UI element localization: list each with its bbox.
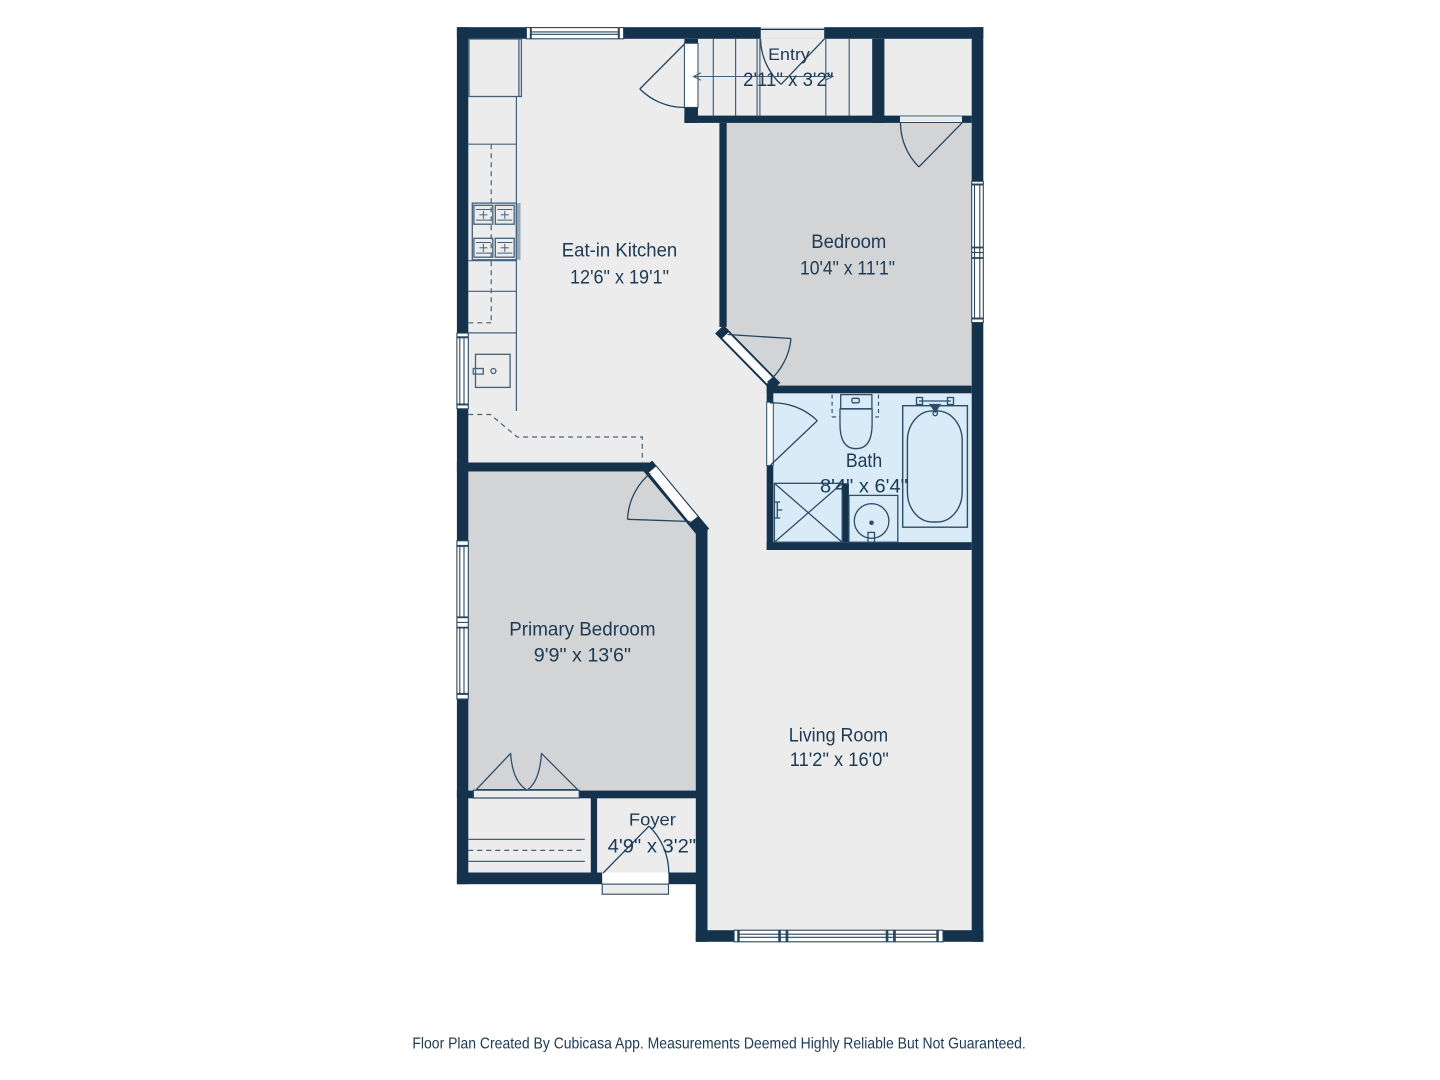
svg-text:Floor Plan Created By Cubicasa: Floor Plan Created By Cubicasa App. Meas… (412, 1035, 1025, 1052)
svg-text:Bath: Bath (846, 450, 882, 472)
svg-text:Living Room: Living Room (789, 725, 888, 747)
svg-text:8'4" x 6'4": 8'4" x 6'4" (820, 476, 908, 498)
svg-text:Bedroom: Bedroom (811, 231, 886, 253)
svg-text:11'2" x 16'0": 11'2" x 16'0" (790, 749, 889, 771)
svg-text:Entry: Entry (768, 46, 811, 64)
svg-text:10'4" x 11'1": 10'4" x 11'1" (800, 258, 895, 280)
svg-text:Eat-in Kitchen: Eat-in Kitchen (562, 240, 678, 262)
svg-text:9'9" x 13'6": 9'9" x 13'6" (534, 645, 631, 667)
svg-text:12'6" x 19'1": 12'6" x 19'1" (570, 266, 669, 288)
svg-text:4'9" x 3'2": 4'9" x 3'2" (608, 835, 696, 857)
svg-text:Foyer: Foyer (629, 810, 676, 830)
svg-text:2'11" x 3'2": 2'11" x 3'2" (743, 69, 833, 91)
svg-text:Primary Bedroom: Primary Bedroom (509, 619, 655, 641)
